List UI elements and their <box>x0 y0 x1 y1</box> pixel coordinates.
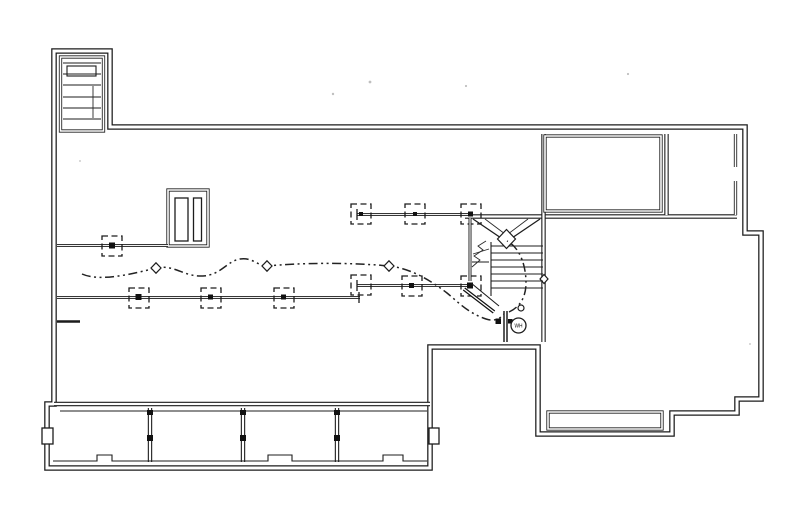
post-mark <box>413 212 417 216</box>
pipe-block <box>496 319 502 325</box>
chimney-flue-slot <box>175 198 188 241</box>
chimney <box>168 190 208 246</box>
utility-line-branch <box>507 241 526 312</box>
post-mark <box>281 295 286 300</box>
post-mark <box>208 295 213 300</box>
main-stairs <box>464 218 543 312</box>
floor-plan-page: WH <box>0 0 800 526</box>
porch-bottom-inner-line-with-vents <box>53 455 427 461</box>
post-mark <box>468 212 473 217</box>
utility-line-path <box>82 259 504 320</box>
floor-plan-canvas: WH <box>0 0 800 526</box>
porch-pilaster <box>42 428 53 444</box>
upper-right-room <box>545 136 661 211</box>
pier-block <box>334 435 340 441</box>
pier-block <box>240 410 246 415</box>
stair-diagonal <box>485 219 505 234</box>
stair-treads <box>491 246 543 288</box>
bottom-right-ledge <box>548 412 662 429</box>
post-mark <box>109 243 115 249</box>
stair-angled-line <box>471 283 499 306</box>
post-mark <box>409 283 414 288</box>
post-footings <box>102 204 481 308</box>
water-heater-label: WH <box>514 323 523 329</box>
bulkhead-treads <box>63 63 101 119</box>
chimney-flue-slot <box>194 198 202 241</box>
pier-block <box>147 435 153 441</box>
pier-block <box>334 410 340 415</box>
exterior-walls <box>47 51 761 468</box>
stair-diagonal <box>508 219 528 234</box>
porch-foundation <box>42 408 439 462</box>
line-diamond-marker <box>151 263 161 273</box>
line-diamond-marker <box>262 261 272 271</box>
stair-bulkhead <box>61 57 104 131</box>
pier-block <box>147 410 153 415</box>
pier-block <box>240 435 246 441</box>
line-diamond-marker <box>384 261 394 271</box>
wall-diamond-marker <box>540 275 548 284</box>
scan-specks <box>79 73 751 345</box>
porch-pilaster <box>429 428 439 444</box>
water-heater: WH <box>496 311 527 342</box>
post-mark <box>136 294 142 300</box>
post-mark <box>359 212 363 216</box>
line-circle-marker <box>518 305 524 311</box>
